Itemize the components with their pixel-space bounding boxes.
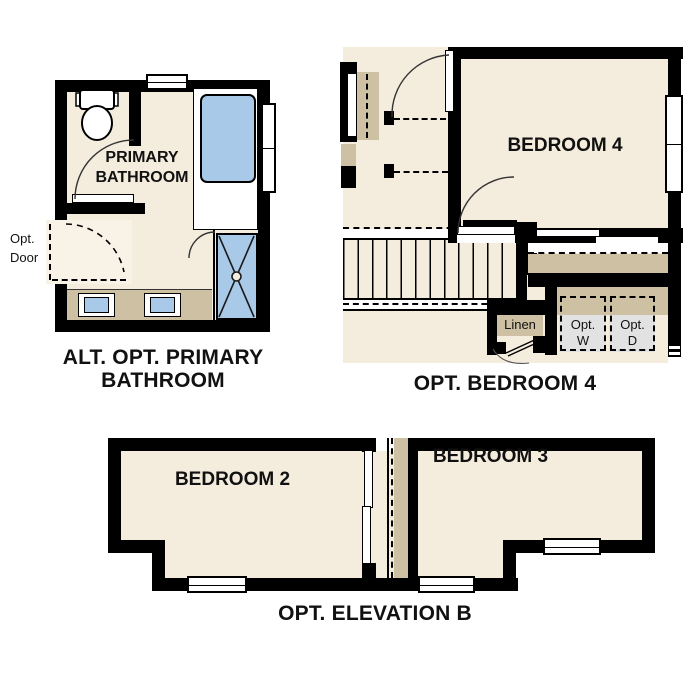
primary-bathroom-label-line1: PRIMARY (62, 149, 222, 167)
closet-shelf (528, 254, 668, 273)
toilet-alcove-door-leaf (72, 194, 134, 203)
bedroom2-top-wall (108, 438, 376, 451)
dryer-label-line2: D (610, 333, 655, 348)
bedroom2-bottom-window (187, 576, 247, 593)
bedroom4-label: BEDROOM 4 (460, 135, 670, 157)
bedroom3-bottom-window-left (418, 576, 475, 593)
divider-thin-line (387, 438, 389, 578)
hall-door-leaf (445, 50, 454, 112)
divider-chase (394, 438, 408, 578)
bedroom4-door-leaf (457, 226, 515, 235)
elevation-b-caption: OPT. ELEVATION B (245, 602, 505, 626)
bedroom3-label: BEDROOM 3 (408, 446, 573, 468)
hall-chase (357, 72, 379, 140)
bathroom-caption-line1: ALT. OPT. PRIMARY (33, 346, 293, 370)
closet-laundry-divider-wall (528, 273, 668, 287)
shower-enclosure-line (213, 230, 215, 320)
divider-window-lower-sash (362, 506, 371, 565)
washer-label-line1: Opt. (560, 317, 606, 332)
floorplan-canvas: PRIMARY BATHROOM Opt. Door ALT. OPT. PRI… (0, 0, 687, 687)
hall-opening-dashed-upper (394, 118, 446, 120)
wall-end-tick-1 (669, 346, 680, 349)
hall-opening-stub-upper (384, 111, 394, 125)
shower-pan (216, 233, 258, 320)
bathroom-top-window (146, 74, 188, 90)
sink-left-basin (84, 297, 109, 313)
bathroom-right-window (261, 103, 276, 193)
hall-chase-stub-tan (341, 144, 356, 166)
bedroom4-caption: OPT. BEDROOM 4 (385, 372, 625, 396)
bedroom4-right-wall (668, 47, 681, 357)
toilet-alcove-wall-horizontal (55, 203, 145, 214)
stairs-top-rail (343, 229, 463, 240)
cut-below-bedroom3 (516, 553, 642, 578)
bedroom4-top-wall (448, 47, 683, 59)
opt-door-label-line2: Door (10, 250, 54, 265)
divider-dashed-line (391, 438, 393, 578)
cut-below-step (121, 553, 152, 578)
bedroom2-left-wall (108, 438, 121, 553)
hall-chase-dashed-line (366, 74, 368, 138)
closet-bypass-door-1 (536, 229, 600, 237)
divider-window-upper-sash (364, 450, 373, 508)
bathroom-opt-door-patch (46, 220, 132, 284)
bedroom3-right-wall (642, 438, 655, 553)
hall-opening-stub-lower (384, 164, 394, 178)
wall-end-tick-2 (669, 352, 680, 355)
linen-top-wall (487, 300, 550, 315)
bathroom-caption-line2: BATHROOM (33, 369, 293, 393)
opt-door-label-line1: Opt. (10, 231, 50, 246)
divider-stub-bottom (362, 563, 376, 580)
toilet-alcove-wall-vertical (129, 92, 141, 146)
washer-label-line2: W (560, 333, 606, 348)
opt-door-closed-dashed (52, 279, 126, 281)
linen-jamb-left (490, 342, 506, 354)
bedroom3-bottom-window-right (543, 538, 601, 555)
stairs-treads (343, 240, 517, 298)
dryer-label-line1: Opt. (610, 317, 655, 332)
sink-right-basin (150, 297, 175, 313)
hall-chase-stub-wall (341, 166, 356, 188)
hall-opening-dashed-lower (394, 171, 448, 173)
bedroom3-step-wall-vertical (503, 540, 516, 591)
hall-left-wall-slit (348, 74, 356, 136)
linen-label: Linen (496, 317, 544, 332)
bedroom2-label: BEDROOM 2 (150, 469, 315, 491)
laundry-left-wall (545, 287, 557, 355)
primary-bathroom-label-line2: BATHROOM (62, 169, 222, 187)
